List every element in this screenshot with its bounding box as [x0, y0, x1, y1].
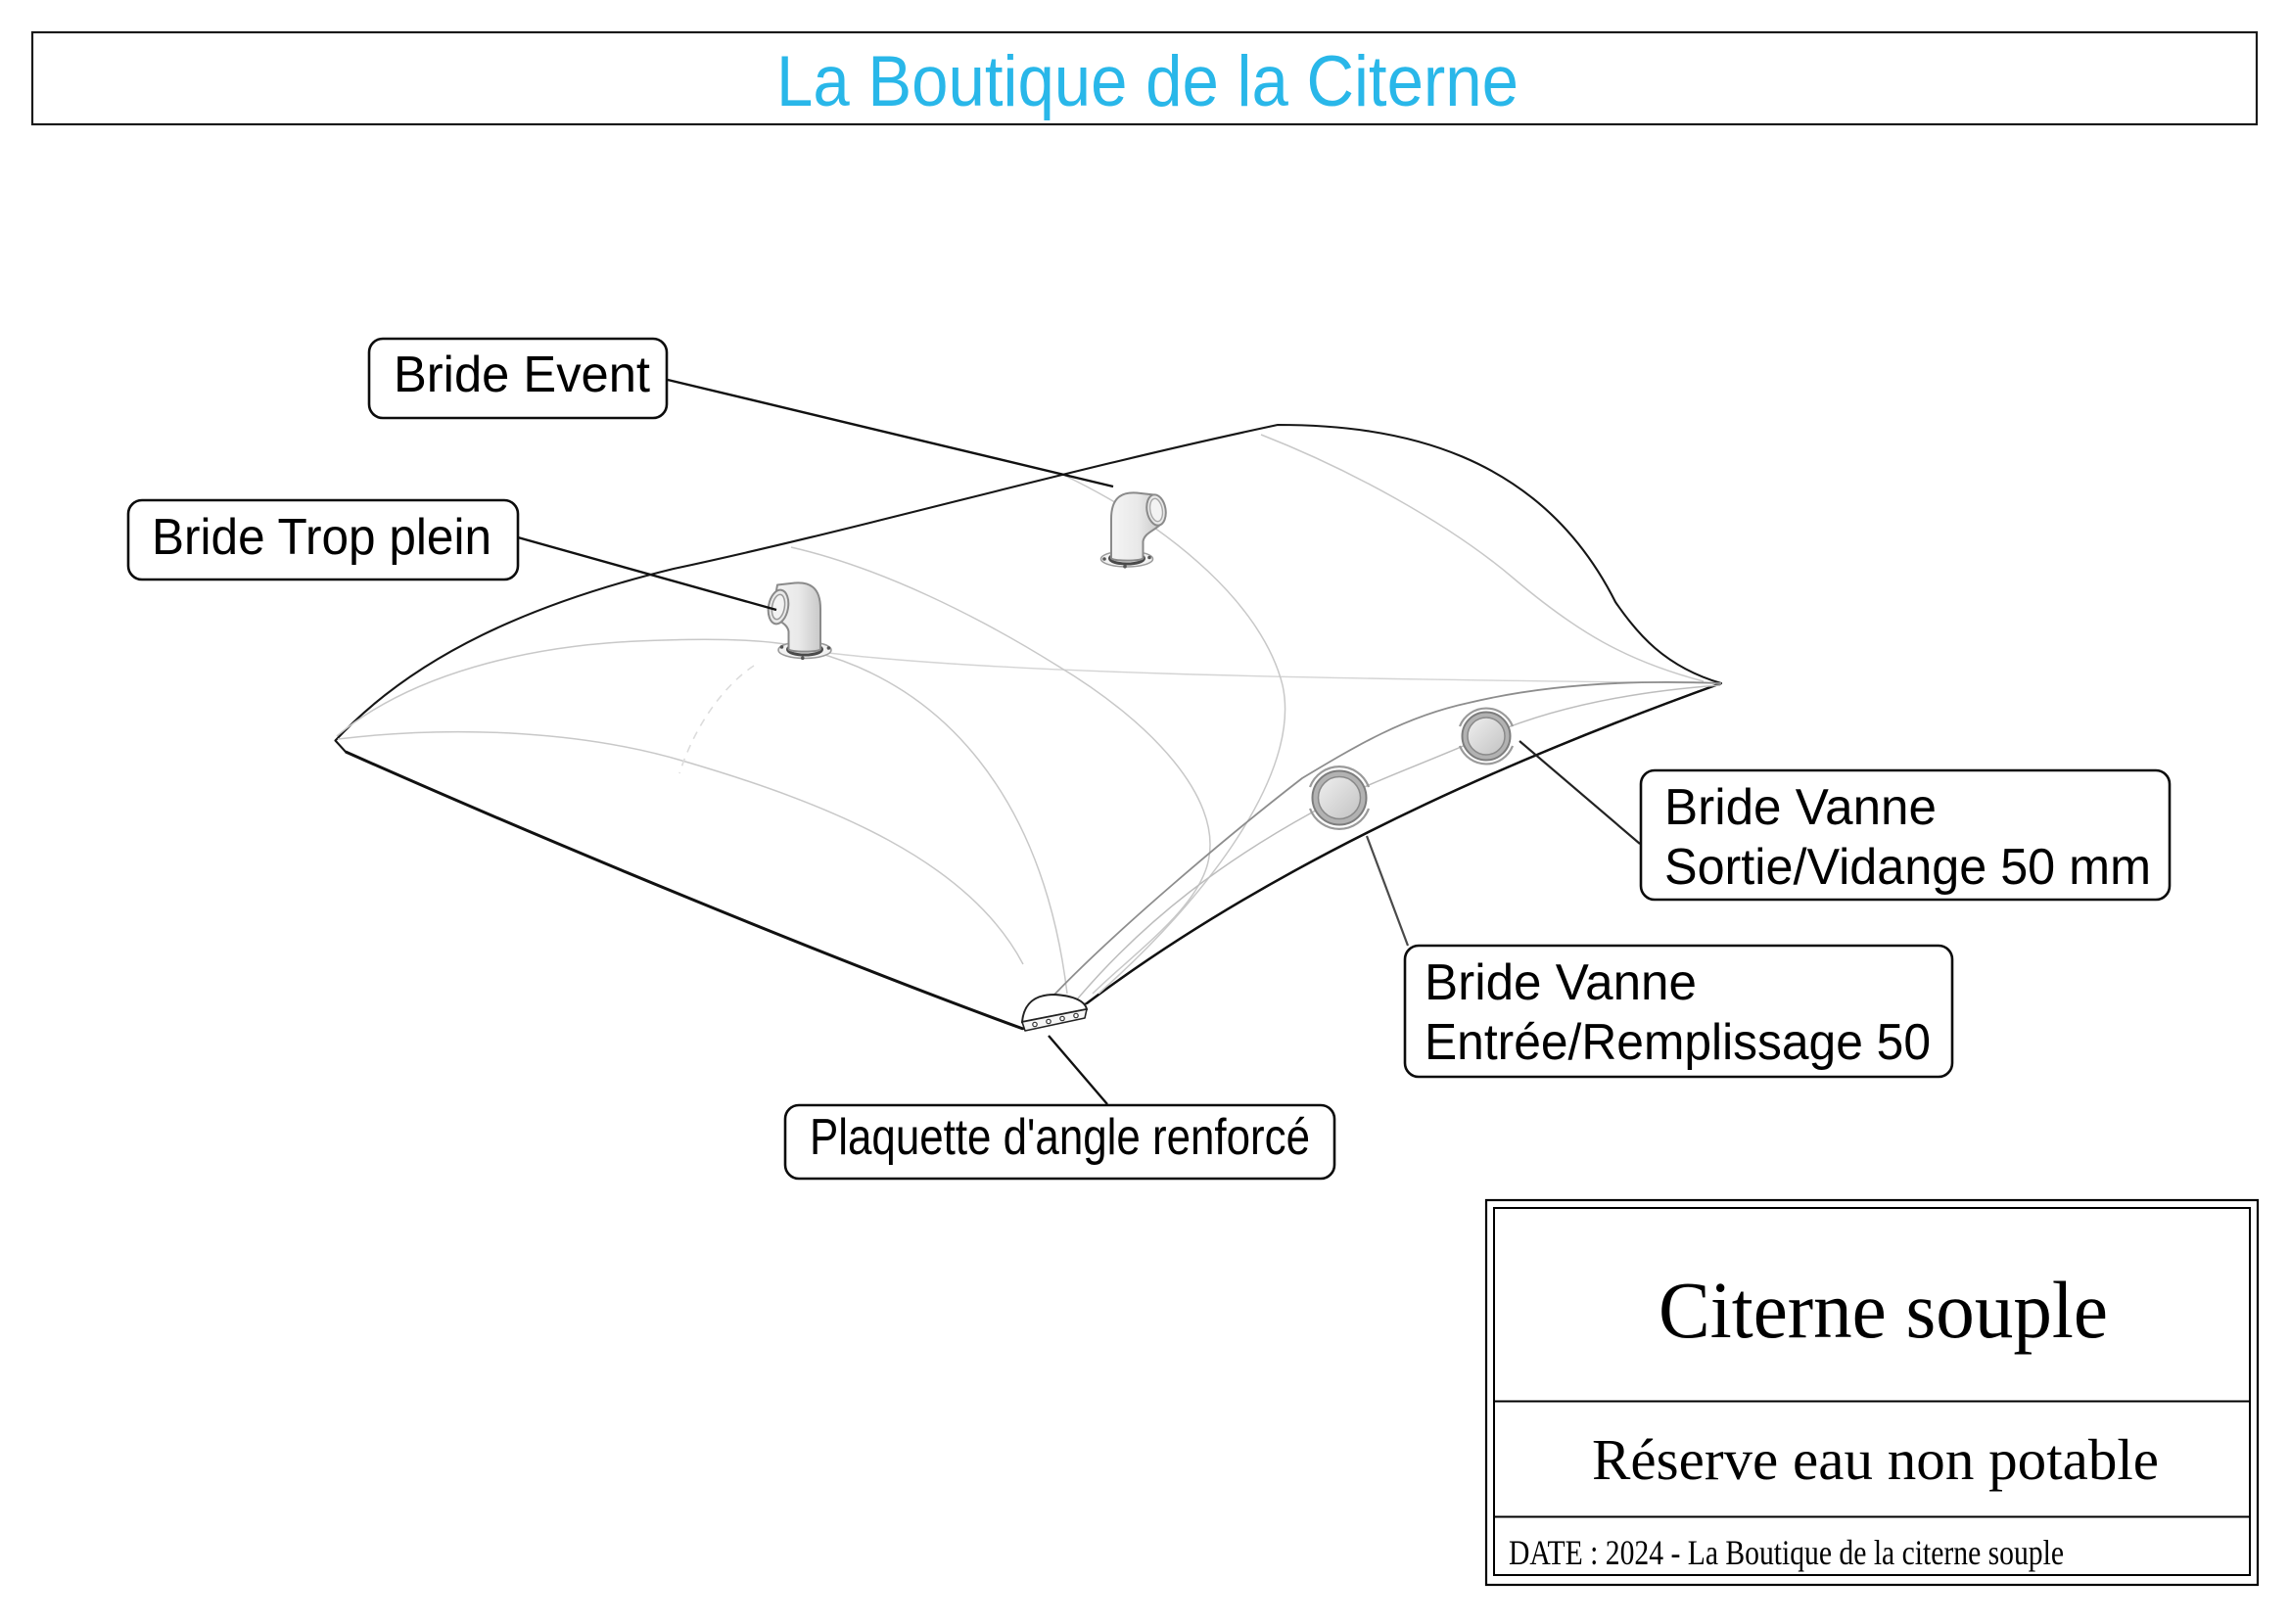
svg-text:Sortie/Vidange 50 mm: Sortie/Vidange 50 mm	[1664, 839, 2151, 896]
svg-text:Citerne souple: Citerne souple	[1659, 1265, 2108, 1355]
svg-text:Plaquette d'angle renforcé: Plaquette d'angle renforcé	[810, 1109, 1310, 1166]
svg-text:Réserve eau non potable: Réserve eau non potable	[1592, 1427, 2159, 1492]
svg-text:Bride Event: Bride Event	[394, 347, 651, 403]
svg-text:Bride Vanne: Bride Vanne	[1425, 954, 1697, 1011]
svg-text:Bride Vanne: Bride Vanne	[1664, 779, 1937, 836]
svg-text:Entrée/Remplissage 50: Entrée/Remplissage 50	[1425, 1014, 1931, 1071]
svg-text:Bride Trop plein: Bride Trop plein	[152, 509, 491, 566]
svg-text:La Boutique de la Citerne: La Boutique de la Citerne	[776, 42, 1519, 121]
svg-text:DATE : 2024 - La Boutique de l: DATE : 2024 - La Boutique de la citerne …	[1509, 1533, 2064, 1572]
